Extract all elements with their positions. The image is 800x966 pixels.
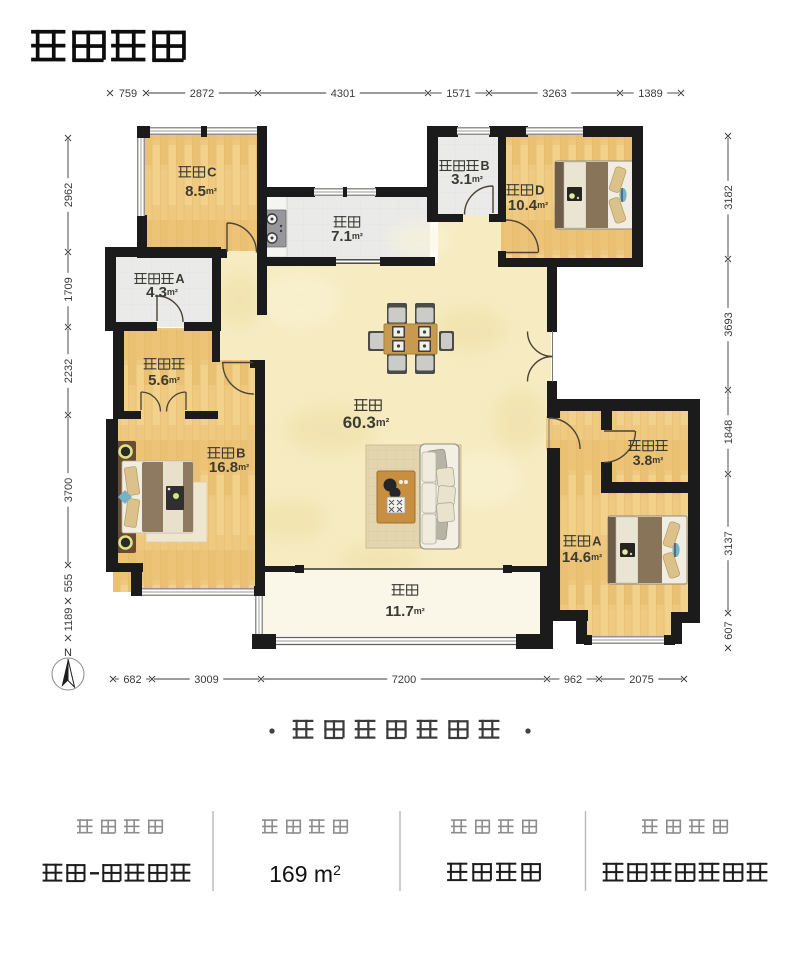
svg-text:C: C <box>207 165 217 180</box>
svg-text:962: 962 <box>564 674 582 686</box>
svg-text:1189: 1189 <box>63 608 75 632</box>
svg-text:4301: 4301 <box>331 88 355 100</box>
svg-text:A: A <box>592 534 602 549</box>
svg-text:682: 682 <box>123 674 141 686</box>
svg-text:2232: 2232 <box>63 359 75 383</box>
svg-text:3263: 3263 <box>542 88 566 100</box>
svg-text:3182: 3182 <box>723 185 735 209</box>
svg-text:555: 555 <box>63 574 75 592</box>
svg-text:N: N <box>64 647 72 659</box>
svg-text:3137: 3137 <box>723 531 735 555</box>
svg-text:169 m2: 169 m2 <box>269 861 341 887</box>
svg-text:1571: 1571 <box>446 88 470 100</box>
svg-text:1389: 1389 <box>638 88 662 100</box>
svg-text:A: A <box>176 272 185 286</box>
svg-text:3700: 3700 <box>63 478 75 502</box>
svg-text:D: D <box>535 183 544 198</box>
svg-text:3009: 3009 <box>194 674 218 686</box>
svg-text:1709: 1709 <box>63 277 75 301</box>
svg-text:1848: 1848 <box>723 420 735 444</box>
svg-text:759: 759 <box>119 88 137 100</box>
svg-text:3693: 3693 <box>723 312 735 336</box>
svg-text:607: 607 <box>723 621 735 639</box>
svg-text:2872: 2872 <box>190 88 214 100</box>
svg-text:2075: 2075 <box>629 674 653 686</box>
svg-text:7200: 7200 <box>392 674 416 686</box>
svg-text:B: B <box>481 159 490 173</box>
svg-text:2962: 2962 <box>63 183 75 207</box>
